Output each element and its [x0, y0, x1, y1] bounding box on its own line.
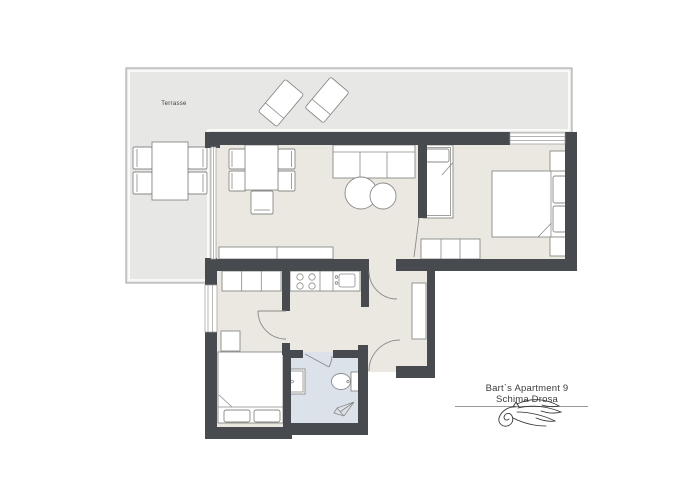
coffee-table	[370, 183, 396, 209]
single-bed-pillow	[426, 149, 449, 162]
terrace-label: Terrasse	[161, 101, 187, 107]
double-bed-pillow	[224, 410, 250, 422]
floorplan-svg: Terrasse	[0, 0, 700, 500]
wall-corner-topleft	[205, 132, 220, 148]
dining-chair	[278, 149, 295, 169]
dining-chair	[229, 149, 246, 169]
toilet	[332, 372, 361, 391]
dining-chair	[251, 191, 273, 214]
wall-kitchen-bedroom-divider	[282, 259, 290, 311]
wall-bathroom-top-b	[333, 350, 368, 358]
sideboard	[219, 247, 333, 259]
dining-chair	[278, 171, 295, 191]
branding: Bart`s Apartment 9 Schima Drosa	[455, 383, 588, 426]
wardrobe	[421, 239, 480, 259]
wall-hallway-left	[361, 259, 369, 307]
floorplan-image: Terrasse	[0, 0, 700, 500]
double-bed-pillow	[254, 410, 280, 422]
apartment-subtitle: Schima Drosa	[496, 394, 559, 405]
wall-living-bedroom-divider	[418, 140, 427, 218]
dining-table	[245, 145, 278, 190]
nightstand	[221, 331, 240, 351]
wall-bedroom-bathroom-divider	[283, 352, 291, 430]
kitchen	[290, 271, 360, 291]
double-bed-pillow	[553, 176, 566, 203]
wall-bedroom-left-bottom	[205, 427, 292, 439]
apartment-title: Bart`s Apartment 9	[486, 383, 569, 394]
wall-bathroom-right	[358, 345, 368, 435]
hallway	[412, 283, 426, 339]
wall-bathroom-bottom	[283, 423, 368, 435]
terrace-chair	[133, 147, 152, 169]
terrace-chair	[188, 172, 207, 194]
sofa	[333, 145, 415, 178]
window-bedroom-left	[205, 285, 217, 332]
toilet-bowl	[332, 374, 351, 390]
wardrobe	[222, 271, 281, 291]
window-top	[510, 133, 565, 144]
dining-chair	[229, 171, 246, 191]
wall-right	[565, 132, 577, 271]
wall-bedroom-bottom	[396, 259, 577, 271]
terrace-chair	[133, 172, 152, 194]
wall-hallway-bottom	[396, 366, 435, 378]
hallway-shelf	[412, 283, 426, 339]
terrace-chair	[188, 147, 207, 169]
double-bed-pillow	[553, 206, 566, 232]
wall-hallway-right	[427, 259, 435, 372]
wall-top	[205, 132, 510, 145]
terrace-table	[152, 142, 188, 200]
